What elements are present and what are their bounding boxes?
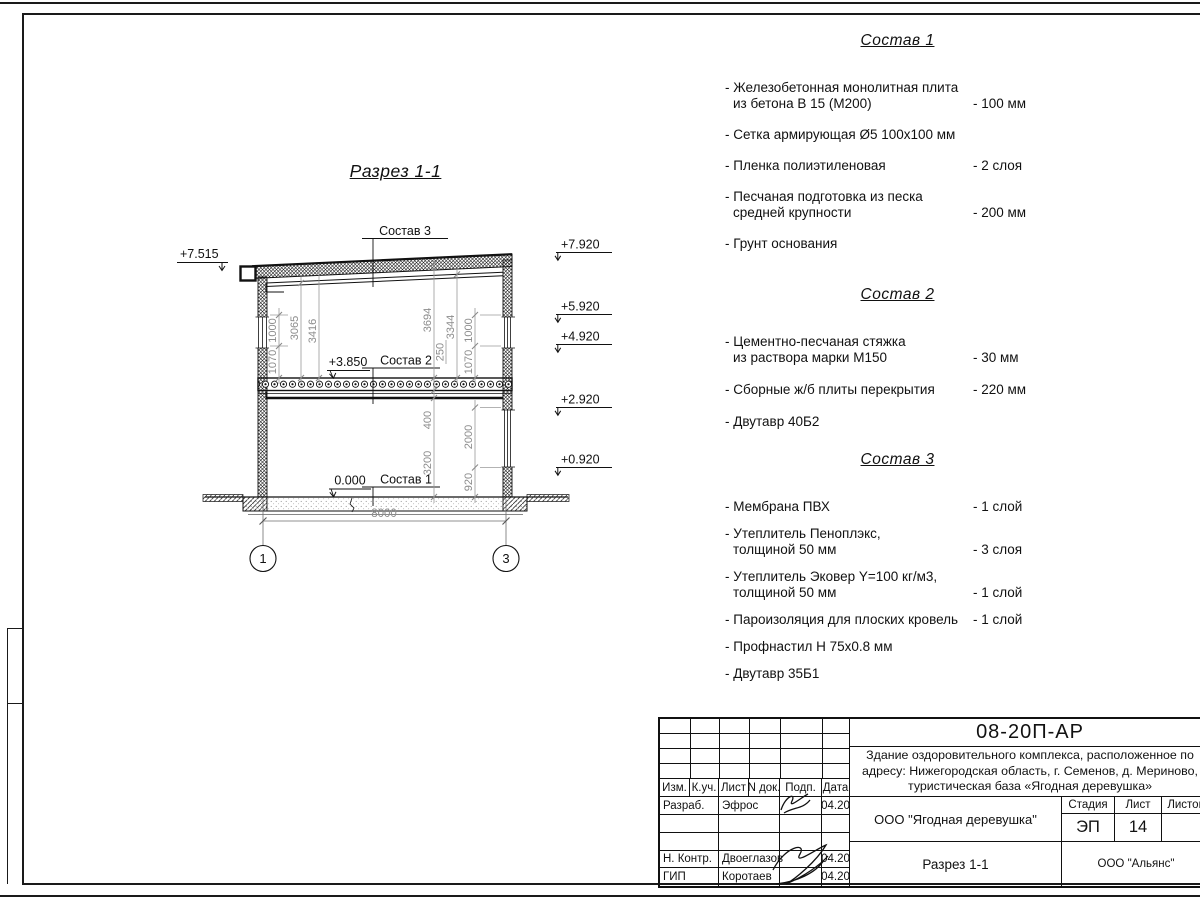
dim-8000: 8000 <box>371 508 397 520</box>
tb-empty-cell <box>719 815 780 833</box>
composition-3-title: Состав 3 <box>725 452 1070 468</box>
tb-project-line3: туристическая база «Ягодная деревушка» <box>908 779 1152 795</box>
tb-company: ООО "Альянс" <box>1062 842 1200 886</box>
title-block-empty-grid <box>660 719 850 779</box>
tb-name-gip: Коротаев <box>719 868 780 886</box>
dim-1070-left: 1070 <box>267 350 279 374</box>
list-item-text: - Сетка армирующая Ø5 100х100 мм <box>725 127 963 143</box>
dim-1000-right: 1000 <box>463 318 475 342</box>
tb-sign-nkontr <box>780 851 822 868</box>
tb-sheets-label: Листов <box>1162 797 1200 814</box>
composition-list-2: Состав 2 - Цементно-песчаная стяжкаиз ра… <box>725 287 1070 446</box>
list-item-text: - Профнастил Н 75х0.8 мм <box>725 639 963 655</box>
list-item-value: - 1 слой <box>963 612 1068 628</box>
list-item-value: - 30 мм <box>963 350 1068 366</box>
tb-object-name: ООО "Ягодная деревушка" <box>850 797 1062 842</box>
level-4920: +4.920 <box>561 330 600 344</box>
list-item-text: - Двутавр 40Б2 <box>725 414 963 430</box>
svg-text:0.000: 0.000 <box>334 474 365 488</box>
tb-header-list: Лист <box>719 779 749 797</box>
dim-1000-left: 1000 <box>267 318 279 342</box>
list-item-value: - 220 мм <box>963 382 1068 398</box>
tb-sign-gip <box>780 868 822 886</box>
composition-list-1: Состав 1 - Железобетонная монолитная пли… <box>725 33 1070 267</box>
tb-sheets-value <box>1162 814 1200 842</box>
svg-text:+3.850: +3.850 <box>329 355 368 369</box>
tb-date-nkontr: 04.20 <box>822 851 850 868</box>
tb-date-razrab: 04.20 <box>822 797 850 815</box>
floor-slab <box>258 378 512 399</box>
dim-1070-right: 1070 <box>463 350 475 374</box>
composition-list-3: Состав 3 - Мембрана ПВХ- 1 слой - Утепли… <box>725 452 1070 693</box>
tb-sign-razrab <box>780 797 822 815</box>
level-5920: +5.920 <box>561 300 600 314</box>
tb-stage-value: ЭП <box>1062 814 1115 842</box>
dim-400: 400 <box>422 411 434 429</box>
list-item-text2: средней крупности <box>725 205 963 221</box>
tb-project-description: Здание оздоровительного комплекса, распо… <box>850 747 1200 797</box>
roof <box>241 254 513 292</box>
list-item-text: - Пленка полиэтиленовая <box>725 158 963 174</box>
list-item-text2: толщиной 50 мм <box>725 542 963 558</box>
tb-role-razrab: Разраб. <box>660 797 719 815</box>
level-2920: +2.920 <box>561 393 600 407</box>
tb-stage-label: Стадия <box>1062 797 1115 814</box>
level-3850: +3.850 <box>327 355 370 378</box>
tb-sheet-value: 14 <box>1115 814 1162 842</box>
tb-sheet-title: Разрез 1-1 <box>850 842 1062 886</box>
level-0920: +0.920 <box>561 453 600 467</box>
callout-sostav3: Состав 3 <box>379 224 431 238</box>
list-item-text: - Сборные ж/б плиты перекрытия <box>725 382 963 398</box>
tb-empty-cell <box>822 815 850 833</box>
tb-sheet-label: Лист <box>1115 797 1162 814</box>
roof-overhang-box <box>241 267 256 281</box>
tb-date-gip: 04.20 <box>822 868 850 886</box>
list-item-value: - 1 слой <box>963 585 1068 601</box>
title-block: Изм. К.уч. Лист N док. Подп. Дата Разраб… <box>658 717 1200 888</box>
list-item-value: - 1 слой <box>963 499 1068 515</box>
dim-3065: 3065 <box>289 316 301 340</box>
list-item-value: - 200 мм <box>963 205 1068 221</box>
section-title: Разрез 1-1 <box>298 161 493 182</box>
dim-920: 920 <box>463 473 475 491</box>
tb-project-line2: адресу: Нижегородская область, г. Семено… <box>862 764 1198 780</box>
level-7515: +7.515 <box>177 247 228 271</box>
right-elevation-marks <box>555 253 612 476</box>
list-item-text: - Грунт основания <box>725 236 963 252</box>
tb-empty-cell <box>822 833 850 851</box>
composition-2-title: Состав 2 <box>725 287 1070 303</box>
tb-empty-cell <box>719 833 780 851</box>
list-item-text: - Песчаная подготовка из песка <box>725 189 963 205</box>
callout-sostav2: Состав 2 <box>380 354 432 368</box>
window-right-upper <box>502 317 516 348</box>
dim-250: 250 <box>435 343 447 361</box>
tb-header-ndok: N док. <box>749 779 780 797</box>
list-item-text2: из раствора марки М150 <box>725 350 963 366</box>
svg-text:+7.515: +7.515 <box>180 247 219 261</box>
tb-role-gip: ГИП <box>660 868 719 886</box>
tb-name-nkontr: Двоеглазов <box>719 851 780 868</box>
window-right-lower <box>502 410 516 467</box>
dim-2000: 2000 <box>463 425 475 449</box>
tb-project-line1: Здание оздоровительного комплекса, распо… <box>866 748 1194 764</box>
list-item-value: - 100 мм <box>963 96 1068 112</box>
tb-header-izm: Изм. <box>660 779 690 797</box>
tb-empty-cell <box>660 833 719 851</box>
axis-number-1: 1 <box>259 551 266 566</box>
tb-empty-cell <box>780 833 822 851</box>
list-item-text: - Пароизоляция для плоских кровель <box>725 612 963 628</box>
level-7920: +7.920 <box>561 238 600 252</box>
tb-name-razrab: Эфрос <box>719 797 780 815</box>
list-item-text2: толщиной 50 мм <box>725 585 963 601</box>
list-item-value: - 2 слоя <box>963 158 1068 174</box>
list-item-text: - Двутавр 35Б1 <box>725 666 963 682</box>
tb-doc-number: 08-20П-АР <box>850 719 1200 747</box>
list-item-text: - Утеплитель Пеноплэкс, <box>725 526 963 542</box>
level-0000: 0.000 <box>329 474 371 497</box>
tb-role-nkontr: Н. Контр. <box>660 851 719 868</box>
dim-3200: 3200 <box>422 451 434 475</box>
tb-header-podp: Подп. <box>780 779 822 797</box>
tb-empty-cell <box>780 815 822 833</box>
list-item-text2: из бетона В 15 (М200) <box>725 96 963 112</box>
dim-3416: 3416 <box>307 319 319 343</box>
dim-3344: 3344 <box>445 315 457 339</box>
list-item-text: - Железобетонная монолитная плита <box>725 80 963 96</box>
tb-header-kuch: К.уч. <box>690 779 719 797</box>
list-item-text: - Утеплитель Эковер Y=100 кг/м3, <box>725 569 963 585</box>
tb-empty-cell <box>660 815 719 833</box>
dim-3694: 3694 <box>422 308 434 332</box>
axis-number-3: 3 <box>502 551 509 566</box>
composition-1-title: Состав 1 <box>725 33 1070 49</box>
tb-header-data: Дата <box>822 779 850 797</box>
list-item-text: - Цементно-песчаная стяжка <box>725 334 963 350</box>
list-item-text: - Мембрана ПВХ <box>725 499 963 515</box>
list-item-value: - 3 слоя <box>963 542 1068 558</box>
